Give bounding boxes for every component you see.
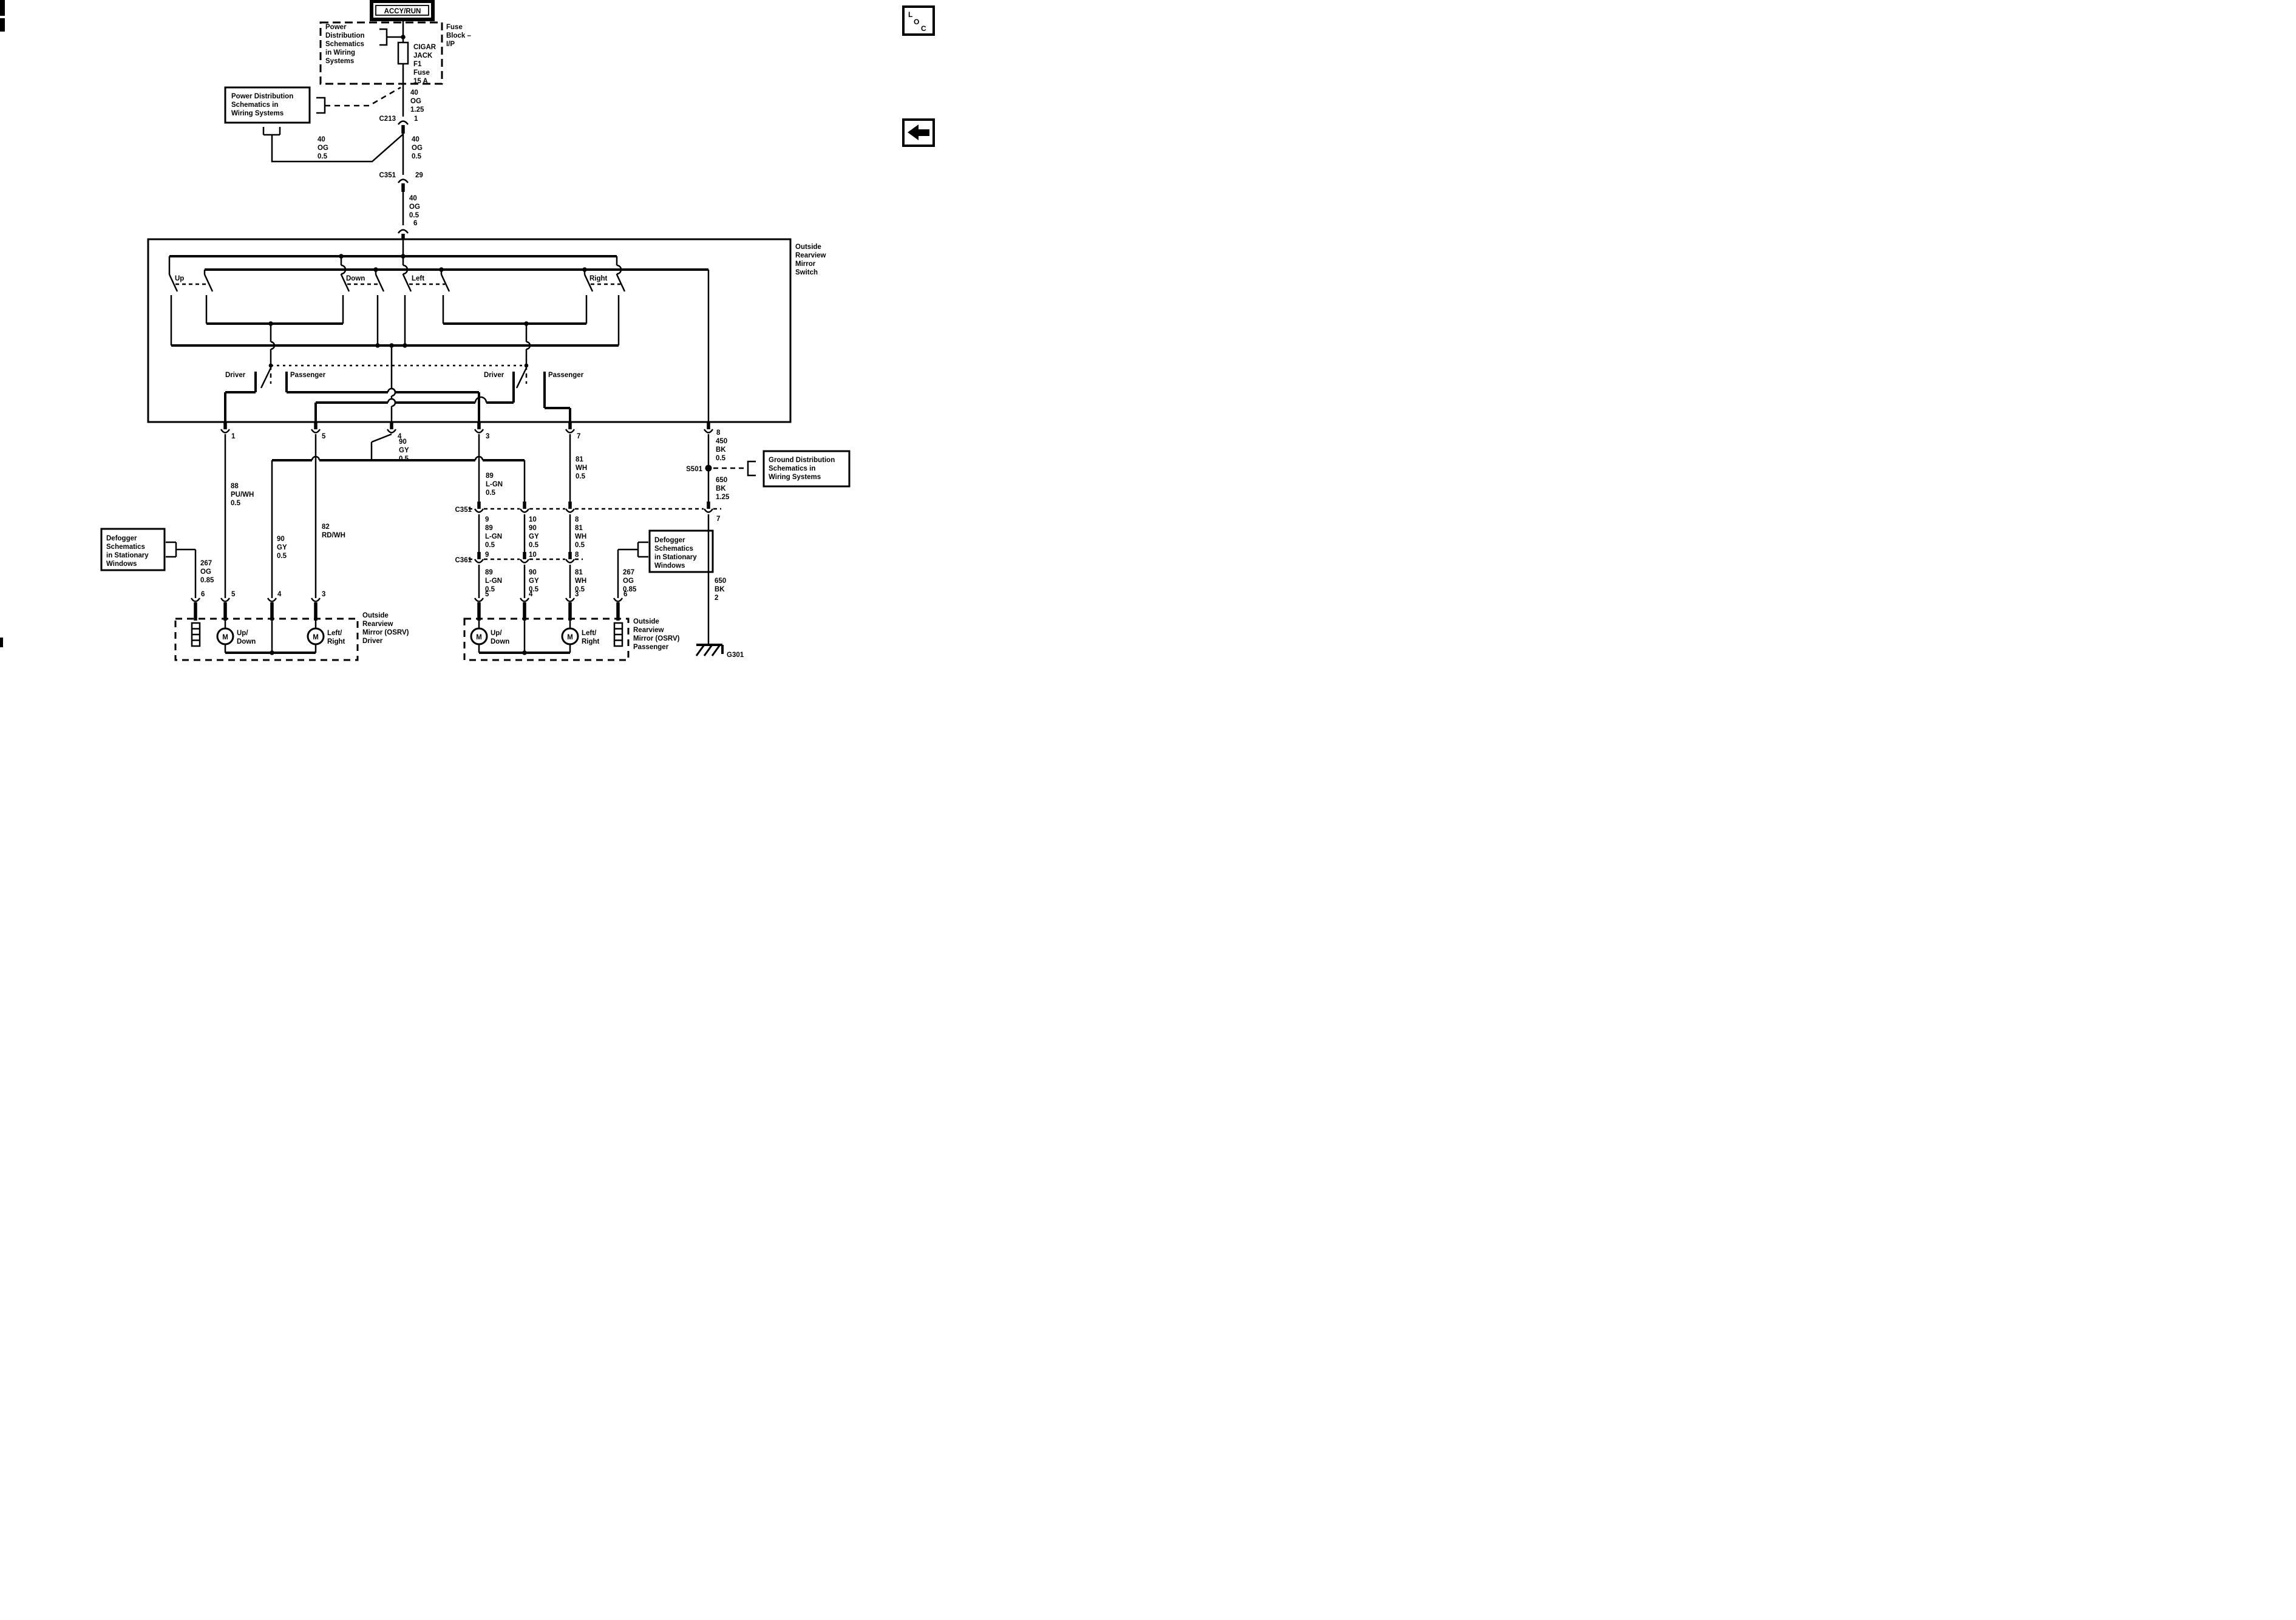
selector-passenger-label: Passenger — [290, 372, 326, 379]
svg-text:9: 9 — [485, 551, 489, 559]
svg-text:4: 4 — [529, 591, 533, 598]
svg-text:8: 8 — [575, 516, 579, 523]
svg-text:81: 81 — [575, 525, 583, 532]
pin-number: 7 — [577, 433, 580, 440]
power-dist-box-line: Schematics in — [231, 101, 278, 109]
fuse-block-ip: Power Distribution Schematics in Wiring … — [321, 22, 472, 84]
svg-text:Up/: Up/ — [491, 630, 502, 637]
run-pin7 — [545, 408, 570, 422]
svg-text:in Stationary: in Stationary — [654, 554, 697, 561]
svg-text:M: M — [222, 634, 228, 641]
svg-text:3: 3 — [575, 591, 579, 598]
svg-text:Rearview: Rearview — [633, 627, 664, 634]
osrv-entry-connectors: 6 5 4 3 5 4 3 6 — [191, 591, 627, 621]
svg-text:L-GN: L-GN — [486, 481, 503, 488]
ground-g301: 650 BK 2 G301 — [696, 514, 744, 659]
osrv-driver-box: Outside Rearview Mirror (OSRV) Driver M … — [175, 612, 409, 660]
pin6-cup — [398, 230, 408, 234]
svg-text:M: M — [313, 634, 319, 641]
svg-text:450: 450 — [716, 438, 727, 445]
svg-text:0.5: 0.5 — [486, 489, 496, 497]
svg-text:OG: OG — [623, 577, 634, 585]
svg-text:0.5: 0.5 — [575, 542, 585, 549]
svg-text:Schematics: Schematics — [106, 543, 145, 551]
svg-text:650: 650 — [715, 577, 726, 585]
svg-text:4: 4 — [277, 591, 282, 598]
svg-text:0.5: 0.5 — [485, 542, 495, 549]
selector-driver-label: Driver — [225, 372, 246, 379]
wire-label: 0.5 — [412, 153, 422, 160]
svg-text:Wiring Systems: Wiring Systems — [769, 474, 821, 481]
svg-text:0.5: 0.5 — [529, 542, 539, 549]
defogger-wire-driver — [166, 542, 195, 598]
defogger-element — [192, 623, 200, 646]
svg-text:88: 88 — [231, 483, 239, 490]
pin-number: 3 — [486, 433, 489, 440]
svg-text:Right: Right — [327, 638, 345, 645]
power-dist-box: Power Distribution Schematics in Wiring … — [225, 87, 403, 162]
passenger-side-wiring: 89 L-GN 0.5 81 WH 0.5 — [479, 434, 587, 502]
svg-text:OG: OG — [200, 568, 211, 576]
svg-text:L-GN: L-GN — [485, 577, 502, 585]
connector-c213: 40 OG 1.25 C213 1 — [379, 89, 424, 175]
wire-label: OG — [412, 145, 423, 152]
wire-label: OG — [318, 145, 328, 152]
pin-number: 1 — [231, 433, 236, 440]
svg-text:Schematics in: Schematics in — [769, 465, 815, 472]
pin-number: 8 — [716, 429, 721, 437]
power-dist-line: Distribution — [325, 32, 365, 39]
wire-label: OG — [409, 203, 420, 211]
loc-button[interactable]: L O C — [903, 7, 934, 35]
c361-label: C361 — [455, 557, 472, 564]
c213-pin: 1 — [414, 115, 418, 123]
svg-text:Left/: Left/ — [582, 630, 597, 637]
svg-text:Passenger: Passenger — [633, 644, 669, 651]
wire-label: 0.5 — [409, 212, 419, 219]
switch-contacts — [171, 295, 619, 345]
defogger-box-passenger: Defogger Schematics in Stationary Window… — [618, 531, 713, 598]
svg-text:Mirror (OSRV): Mirror (OSRV) — [362, 629, 409, 636]
power-dist-line: Systems — [325, 58, 354, 65]
defogger-element — [614, 623, 622, 646]
svg-text:89: 89 — [485, 569, 493, 576]
defogger-box-driver: Defogger Schematics in Stationary Window… — [101, 529, 214, 598]
svg-text:Down: Down — [237, 638, 256, 645]
wiring-diagram-page: ACCY/RUN Power Distribution Schematics i… — [0, 0, 939, 662]
switch-title: Switch — [795, 269, 818, 276]
fuse-name-line: CIGAR — [413, 44, 436, 51]
c351-label: C351 — [455, 506, 472, 514]
svg-text:0.5: 0.5 — [576, 473, 586, 480]
back-arrow-button[interactable] — [903, 120, 934, 146]
svg-text:0.85: 0.85 — [200, 577, 214, 584]
svg-text:81: 81 — [575, 569, 583, 576]
svg-text:Right: Right — [582, 638, 600, 645]
svg-text:BK: BK — [716, 485, 726, 492]
power-dist-box-line: Power Distribution — [231, 93, 293, 100]
svg-text:90: 90 — [529, 525, 537, 532]
accy-run-block: ACCY/RUN — [372, 1, 433, 19]
svg-text:9: 9 — [485, 516, 489, 523]
power-dist-ref-link — [316, 87, 401, 113]
svg-text:WH: WH — [575, 533, 586, 540]
mirror-switch-box: Outside Rearview Mirror Switch Up Down L — [148, 239, 826, 422]
connector-row-c361: C361 89 L-GN 0.5 90 GY 0.5 81 WH 0.5 — [455, 552, 587, 598]
svg-text:90: 90 — [399, 438, 407, 446]
svg-text:1.25: 1.25 — [716, 494, 730, 501]
loc-letter: O — [914, 18, 919, 26]
svg-text:Windows: Windows — [654, 562, 685, 570]
svg-text:Mirror (OSRV): Mirror (OSRV) — [633, 635, 680, 642]
svg-text:WH: WH — [575, 577, 586, 585]
pin6-label: 6 — [413, 220, 417, 227]
c213-label: C213 — [379, 115, 396, 123]
fuse-block-label: Fuse — [446, 24, 463, 31]
pin-number: 5 — [322, 433, 326, 440]
svg-text:L-GN: L-GN — [485, 533, 502, 540]
svg-text:in Stationary: in Stationary — [106, 552, 149, 559]
svg-text:Outside: Outside — [362, 612, 389, 619]
svg-text:89: 89 — [485, 525, 493, 532]
switch-title: Rearview — [795, 252, 826, 259]
svg-text:8: 8 — [575, 551, 579, 559]
ref-bracket — [316, 98, 325, 113]
power-dist-line: in Wiring — [325, 49, 355, 56]
switch-blades — [169, 274, 625, 291]
loc-letter: C — [921, 24, 926, 33]
connector-row-c351: C351 9 10 8 7 — [455, 502, 722, 523]
osrv-passenger-box: Outside Rearview Mirror (OSRV) Passenger… — [464, 618, 680, 660]
svg-text:Rearview: Rearview — [362, 621, 393, 628]
svg-text:Up/: Up/ — [237, 630, 248, 637]
svg-text:GY: GY — [529, 577, 539, 585]
power-dist-branch-wire — [263, 127, 403, 162]
svg-text:2: 2 — [715, 594, 718, 602]
wire-90-gy-jog — [372, 434, 392, 460]
svg-text:0.5: 0.5 — [231, 500, 241, 507]
c213-cup — [398, 121, 408, 125]
switch-box-pins: 1 5 4 3 7 8 — [221, 422, 721, 440]
fuse-name-line: 15 A — [413, 78, 428, 85]
fuse-block-label: I/P — [446, 41, 455, 48]
accy-run-label: ACCY/RUN — [384, 8, 421, 15]
c351-top-label: C351 — [379, 172, 396, 179]
splice-s501 — [705, 465, 712, 472]
svg-text:Defogger: Defogger — [106, 535, 137, 542]
svg-text:M: M — [476, 634, 482, 641]
svg-text:0.5: 0.5 — [277, 553, 287, 560]
switch-title: Outside — [795, 243, 821, 251]
selector-passenger-label: Passenger — [548, 372, 584, 379]
g301-label: G301 — [727, 652, 744, 659]
power-dist-line: Schematics — [325, 41, 364, 48]
svg-text:Down: Down — [491, 638, 509, 645]
wire-label: 40 — [318, 136, 325, 143]
page-edge-marks — [0, 0, 5, 647]
wire-labels-40og05: 40 OG 0.5 40 OG 0.5 — [318, 136, 423, 160]
fuse-block-label: Block – — [446, 32, 472, 39]
c351-pin7: 7 — [716, 516, 720, 523]
svg-text:BK: BK — [716, 446, 726, 454]
svg-text:GY: GY — [399, 447, 409, 454]
wire-label: 0.5 — [318, 153, 328, 160]
svg-text:90: 90 — [529, 569, 537, 576]
switch-up-label[interactable]: Up — [175, 275, 184, 282]
svg-text:267: 267 — [200, 560, 212, 567]
svg-text:Left/: Left/ — [327, 630, 342, 637]
svg-text:Schematics: Schematics — [654, 545, 693, 553]
c351-29-cup — [398, 180, 408, 183]
wire-label: 40 — [412, 136, 419, 143]
svg-text:Windows: Windows — [106, 560, 137, 568]
switch-title: Mirror — [795, 260, 816, 268]
svg-text:Driver: Driver — [362, 638, 383, 645]
s501-ref-bracket — [748, 461, 756, 475]
fuse-name-line: JACK — [413, 52, 433, 60]
svg-text:267: 267 — [623, 569, 634, 576]
wire-label: 40 — [410, 89, 418, 97]
svg-text:RD/WH: RD/WH — [322, 532, 345, 539]
run-pin1 — [225, 392, 256, 422]
wire-label: 40 — [409, 195, 417, 202]
fuse-name-line: Fuse — [413, 69, 430, 77]
s501-label: S501 — [686, 466, 702, 473]
svg-text:81: 81 — [576, 456, 583, 463]
svg-text:0.5: 0.5 — [716, 455, 726, 462]
selector-driver-label: Driver — [484, 372, 504, 379]
svg-text:GY: GY — [277, 544, 287, 551]
svg-text:650: 650 — [716, 477, 727, 484]
connector-c351-29: C351 29 40 OG 0.5 6 — [379, 172, 423, 240]
c351-top-pin: 29 — [415, 172, 423, 179]
svg-text:M: M — [567, 634, 573, 641]
svg-text:3: 3 — [322, 591, 325, 598]
wire-label: OG — [410, 98, 421, 105]
wiring-diagram: ACCY/RUN Power Distribution Schematics i… — [0, 0, 939, 662]
power-dist-box-line: Wiring Systems — [231, 110, 284, 117]
power-dist-line: Power — [325, 24, 347, 31]
svg-text:10: 10 — [529, 516, 537, 523]
svg-text:Outside: Outside — [633, 618, 659, 625]
switch-down-label[interactable]: Down — [346, 275, 365, 282]
svg-text:82: 82 — [322, 523, 330, 531]
ground-chain: 450 BK 0.5 S501 Ground Distribution Sche… — [686, 434, 849, 502]
fuse-symbol — [398, 43, 408, 64]
svg-text:6: 6 — [201, 591, 205, 598]
svg-text:Defogger: Defogger — [654, 537, 685, 544]
svg-text:10: 10 — [529, 551, 537, 559]
wire-label: 1.25 — [410, 106, 424, 114]
run-pin4 — [392, 345, 395, 422]
switch-right-label[interactable]: Right — [589, 275, 608, 282]
svg-text:BK: BK — [715, 586, 725, 593]
svg-text:GY: GY — [529, 533, 539, 540]
svg-text:90: 90 — [277, 536, 285, 543]
loc-letter: L — [908, 10, 912, 19]
svg-text:Ground Distribution: Ground Distribution — [769, 457, 835, 464]
svg-text:6: 6 — [623, 591, 627, 598]
fuse-name-line: F1 — [413, 61, 422, 68]
svg-text:89: 89 — [486, 472, 494, 480]
switch-left-label[interactable]: Left — [412, 275, 424, 282]
svg-text:5: 5 — [485, 591, 489, 598]
svg-text:PU/WH: PU/WH — [231, 491, 254, 499]
ref-dashed-wire — [325, 87, 401, 106]
svg-text:WH: WH — [576, 465, 587, 472]
run-pin5 — [316, 403, 514, 422]
svg-text:5: 5 — [231, 591, 236, 598]
